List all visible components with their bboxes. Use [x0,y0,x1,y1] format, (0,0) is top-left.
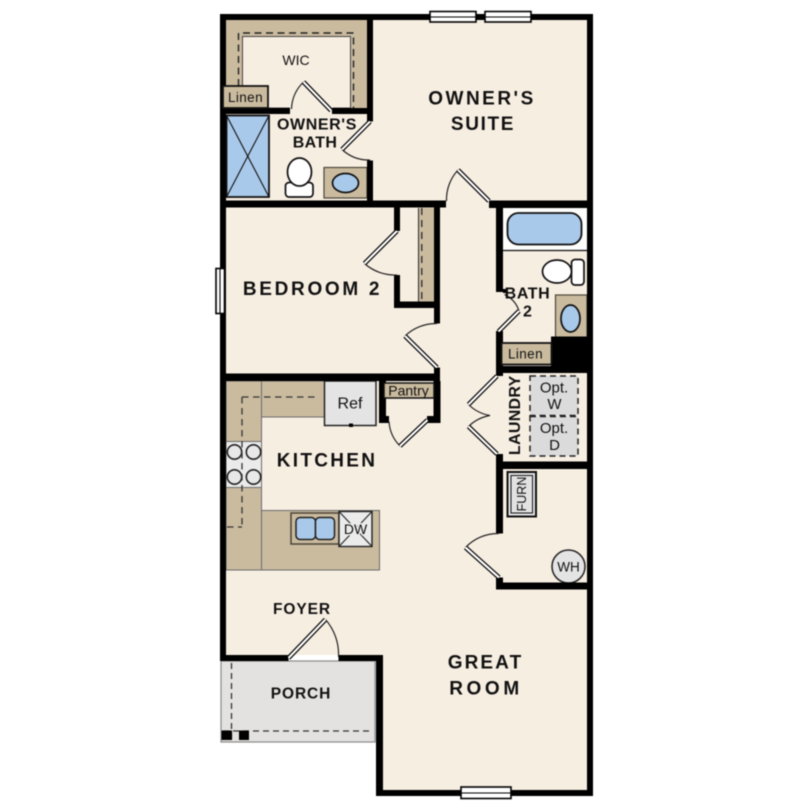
svg-text:Pantry: Pantry [388,383,428,399]
svg-text:FURN: FURN [515,477,529,512]
svg-text:BEDROOM 2: BEDROOM 2 [243,279,382,300]
svg-text:SUITE: SUITE [451,114,515,135]
svg-text:Linen: Linen [228,90,263,105]
svg-text:BATH: BATH [293,135,337,152]
svg-text:Ref: Ref [338,396,363,413]
svg-text:PORCH: PORCH [271,686,331,703]
svg-text:2: 2 [523,304,532,321]
svg-text:GREAT: GREAT [448,653,524,674]
svg-text:OWNER'S: OWNER'S [428,89,536,110]
svg-text:WIC: WIC [282,52,309,68]
svg-text:W: W [547,396,562,413]
svg-text:DW: DW [344,521,368,537]
svg-text:ROOM: ROOM [449,679,523,700]
svg-text:D: D [549,437,560,454]
svg-text:WH: WH [557,560,580,575]
svg-text:OWNER'S: OWNER'S [277,117,357,134]
svg-text:Linen: Linen [508,347,543,362]
svg-text:KITCHEN: KITCHEN [277,451,378,472]
svg-text:BATH: BATH [505,286,551,303]
svg-text:LAUNDRY: LAUNDRY [507,375,524,455]
svg-text:Opt.: Opt. [540,420,568,437]
svg-text:Opt.: Opt. [540,380,568,397]
svg-text:FOYER: FOYER [273,601,331,618]
